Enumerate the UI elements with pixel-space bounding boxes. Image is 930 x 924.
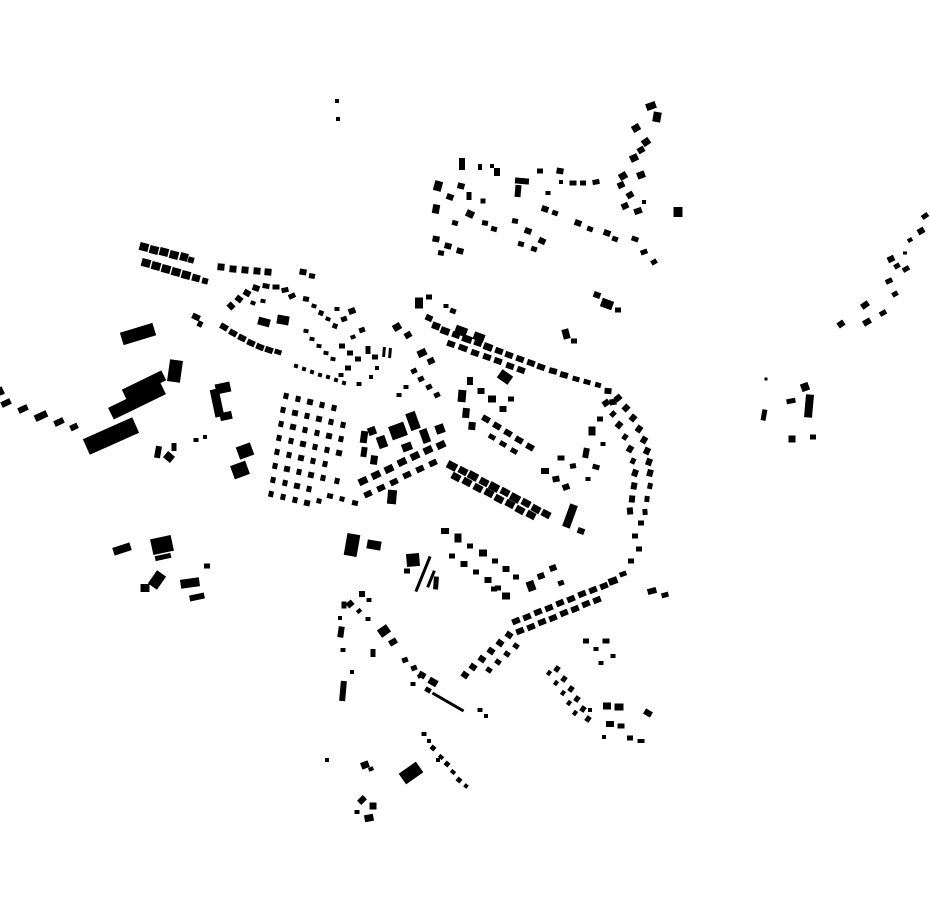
building-footprint — [570, 181, 577, 186]
building-footprint — [167, 359, 183, 383]
building-footprint — [446, 340, 456, 348]
building-footprint — [404, 385, 409, 389]
building-footprint — [626, 444, 635, 453]
building-footprint — [450, 769, 456, 775]
building-footprint — [647, 483, 653, 490]
building-footprint — [789, 436, 796, 443]
building-footprint — [555, 599, 565, 608]
building-footprint — [336, 117, 340, 121]
building-footprint — [325, 316, 331, 321]
building-footprint — [566, 595, 576, 604]
building-footprint — [120, 323, 156, 345]
building-footprint — [446, 460, 459, 472]
building-footprint — [376, 484, 386, 493]
building-footprint — [481, 414, 491, 423]
building-footprint — [520, 498, 531, 508]
building-footprint — [885, 277, 893, 284]
building-footprint — [415, 298, 423, 309]
building-footprint — [810, 435, 816, 440]
building-footprint — [594, 647, 599, 651]
building-footprint — [286, 452, 292, 459]
building-footprint — [450, 472, 461, 482]
building-footprint — [460, 671, 469, 680]
building-footprint — [618, 724, 625, 729]
building-footprint — [434, 423, 446, 435]
building-footprint — [579, 705, 587, 713]
building-footprint — [334, 478, 340, 485]
building-footprint — [17, 404, 29, 414]
building-footprint — [661, 592, 669, 599]
building-footprint — [907, 237, 913, 243]
building-footprint — [241, 266, 249, 274]
building-footprint — [567, 685, 575, 693]
building-footprint — [314, 430, 320, 437]
building-footprint — [621, 433, 629, 441]
building-footprint — [640, 435, 649, 444]
building-footprint — [628, 413, 637, 422]
building-footprint — [252, 284, 261, 292]
building-footprint — [804, 394, 814, 418]
building-footprint — [458, 344, 469, 353]
building-footprint — [282, 480, 288, 487]
building-footprint — [921, 212, 930, 220]
building-footprint — [599, 661, 604, 665]
building-footprint — [514, 435, 524, 444]
building-footprint — [570, 463, 577, 469]
building-footprint — [516, 366, 526, 374]
building-footprint — [307, 471, 314, 478]
building-footprint — [522, 613, 532, 622]
building-footprint — [765, 378, 768, 381]
building-footprint — [513, 575, 519, 580]
building-footprint — [151, 261, 162, 271]
building-footprint — [586, 226, 593, 233]
building-footprint — [537, 618, 547, 627]
building-footprint — [497, 369, 513, 385]
building-footprint — [322, 461, 328, 468]
building-footprint — [281, 287, 289, 293]
building-footprint — [512, 218, 519, 224]
building-footprint — [280, 407, 286, 414]
building-footprint — [141, 584, 150, 592]
building-footprint — [629, 495, 636, 502]
building-footprint — [339, 496, 345, 502]
building-footprint — [340, 422, 346, 429]
building-footprint — [262, 283, 270, 289]
building-footprint — [494, 347, 504, 355]
building-footprint — [69, 423, 79, 432]
building-footprint — [236, 442, 255, 459]
building-footprint — [560, 675, 568, 683]
building-footprint — [359, 591, 365, 597]
building-footprint — [315, 415, 322, 422]
building-footprint — [510, 447, 519, 455]
building-footprint — [429, 744, 436, 751]
building-footprint — [891, 290, 899, 297]
building-footprint — [316, 344, 322, 349]
building-footprint — [503, 650, 511, 658]
building-footprint — [594, 382, 601, 388]
building-footprint — [541, 468, 549, 474]
building-footprint — [573, 695, 581, 703]
building-footprint — [491, 587, 497, 592]
building-footprint — [402, 471, 412, 480]
building-footprint — [584, 715, 592, 723]
building-footprint — [580, 181, 586, 186]
building-footprint — [360, 431, 369, 444]
building-footprint — [431, 321, 441, 330]
building-footprint — [643, 447, 651, 456]
building-footprint — [219, 322, 229, 331]
building-footprint — [597, 417, 603, 422]
building-footprint — [397, 393, 402, 397]
building-footprint — [638, 521, 644, 526]
building-footprint — [376, 435, 389, 449]
building-footprint — [338, 616, 342, 620]
building-footprint — [303, 296, 310, 302]
building-footprint — [34, 410, 49, 422]
building-footprint — [338, 436, 344, 443]
building-footprint — [337, 626, 344, 638]
building-footprint — [350, 670, 354, 674]
building-footprint — [650, 258, 658, 265]
building-footprint — [604, 388, 611, 395]
building-footprint — [141, 258, 152, 268]
building-footprint — [169, 250, 180, 260]
building-footprint — [611, 236, 618, 243]
building-footprint — [401, 657, 408, 664]
building-footprint — [302, 427, 308, 434]
building-footprint — [674, 207, 683, 217]
building-footprint — [237, 334, 247, 343]
building-footprint — [483, 342, 494, 352]
building-footprint — [342, 381, 347, 386]
building-footprint — [330, 357, 336, 362]
building-footprint — [427, 739, 431, 743]
building-footprint — [320, 475, 326, 482]
building-footprint — [536, 363, 546, 371]
building-footprint — [603, 229, 612, 237]
building-footprint — [465, 209, 475, 219]
building-footprint — [229, 265, 237, 273]
building-footprint — [478, 388, 485, 394]
building-footprint — [191, 274, 201, 283]
building-footprint — [560, 690, 566, 696]
building-footprint — [583, 379, 591, 386]
building-footprint — [621, 403, 630, 412]
building-footprint — [419, 428, 431, 444]
building-footprint — [303, 499, 310, 506]
building-footprint — [344, 533, 361, 557]
building-footprint — [341, 648, 346, 652]
building-footprint — [508, 397, 514, 402]
building-footprint — [617, 181, 626, 189]
building-footprint — [549, 564, 558, 572]
building-footprint — [295, 396, 301, 403]
building-footprint — [577, 590, 587, 599]
building-footprint — [342, 602, 347, 609]
building-footprint — [274, 449, 280, 456]
building-footprint — [517, 241, 524, 247]
building-footprint — [438, 250, 445, 256]
building-footprint — [310, 458, 316, 465]
building-footprint — [382, 347, 386, 357]
building-footprint — [433, 180, 443, 192]
building-footprint — [652, 111, 662, 122]
building-footprint — [297, 454, 304, 461]
building-footprint — [581, 600, 591, 609]
building-footprint — [553, 680, 559, 686]
building-footprint — [274, 349, 282, 356]
building-footprint — [627, 736, 633, 741]
building-footprint — [646, 469, 654, 477]
building-footprint — [461, 561, 468, 567]
building-footprint — [411, 682, 416, 686]
building-footprint — [180, 577, 200, 589]
building-footprint — [189, 593, 205, 602]
building-footprint — [201, 277, 208, 284]
building-footprint — [647, 587, 657, 595]
building-footprint — [161, 264, 172, 274]
building-footprint — [334, 378, 339, 383]
building-footprint — [357, 476, 368, 486]
building-footprint — [526, 623, 536, 632]
building-footprint — [599, 582, 609, 591]
building-footprint — [615, 308, 621, 313]
building-footprint — [903, 252, 907, 255]
building-footprint — [614, 420, 623, 429]
building-footprint — [154, 446, 162, 459]
building-footprint — [538, 237, 547, 245]
building-footprint — [302, 367, 307, 372]
building-footprint — [463, 783, 469, 789]
building-footprint — [352, 500, 359, 506]
building-footprint — [546, 670, 552, 676]
building-footprint — [264, 346, 274, 354]
building-footprint — [582, 448, 590, 459]
building-footprint — [422, 732, 427, 736]
building-footprint — [303, 329, 309, 334]
building-footprint — [355, 357, 361, 362]
building-footprint — [370, 803, 377, 810]
building-footprint — [372, 355, 378, 360]
building-footprint — [399, 762, 424, 785]
building-footprint — [562, 483, 571, 491]
building-footprint — [425, 314, 434, 322]
building-footprint — [588, 708, 592, 712]
building-footprint — [556, 167, 564, 174]
building-footprint — [457, 182, 465, 190]
building-footprint — [324, 447, 330, 454]
building-footprint — [502, 593, 510, 600]
building-footprint — [633, 207, 643, 215]
building-footprint — [327, 493, 334, 499]
building-footprint — [558, 456, 565, 461]
building-footprint — [632, 534, 638, 539]
building-footprint — [619, 570, 627, 577]
building-footprint — [583, 639, 589, 644]
building-footprint — [441, 528, 449, 534]
building-footprint — [486, 647, 495, 656]
building-footprint — [592, 596, 602, 605]
building-footprint — [366, 346, 371, 354]
building-footprint — [500, 406, 507, 412]
building-footprint — [482, 353, 492, 361]
building-footprint — [636, 547, 642, 552]
building-footprint — [511, 617, 521, 626]
building-footprint — [335, 449, 342, 456]
building-footprint — [389, 478, 399, 487]
building-footprint — [492, 559, 498, 564]
building-footprint — [139, 242, 150, 252]
building-footprint — [196, 320, 203, 328]
building-footprint — [615, 704, 624, 711]
building-footprint — [253, 267, 261, 275]
building-footprint — [879, 309, 888, 317]
building-footprint — [309, 337, 315, 342]
building-footprint — [149, 245, 160, 255]
building-footprint — [335, 307, 340, 311]
building-footprint — [268, 491, 274, 498]
building-footprint — [230, 461, 250, 480]
building-footprint — [273, 285, 280, 290]
building-footprint — [387, 490, 397, 505]
building-footprint — [557, 580, 564, 587]
building-footprint — [551, 210, 558, 217]
building-footprint — [572, 710, 578, 716]
building-footprint — [283, 393, 289, 400]
building-footprint — [283, 465, 290, 472]
building-footprint — [456, 247, 464, 255]
building-footprint — [603, 639, 610, 644]
building-footprint — [467, 377, 473, 385]
building-footprint — [53, 417, 65, 427]
building-footprint — [345, 366, 351, 371]
building-footprint — [485, 666, 493, 674]
building-footprint — [515, 627, 525, 636]
building-footprint — [625, 191, 634, 200]
building-footprint — [467, 192, 472, 200]
building-footprint — [836, 320, 845, 329]
building-footprint — [488, 433, 497, 441]
building-footprint — [288, 292, 296, 299]
building-footprint — [332, 323, 338, 329]
building-footprint — [548, 614, 558, 623]
building-footprint — [325, 432, 332, 439]
building-footprint — [370, 470, 381, 480]
building-footprint — [481, 199, 486, 204]
building-footprint — [292, 497, 298, 504]
building-footprint — [451, 220, 458, 226]
building-footprint — [340, 316, 347, 323]
building-footprint — [425, 383, 433, 390]
building-footprint — [524, 227, 533, 235]
building-footprint — [482, 220, 489, 226]
building-footprint — [541, 205, 550, 213]
building-footprint — [572, 376, 580, 383]
building-footprint — [310, 370, 315, 375]
building-footprint — [326, 375, 331, 380]
building-footprint — [0, 386, 5, 395]
building-footprint — [544, 604, 554, 613]
building-footprint — [357, 795, 367, 805]
building-footprint — [530, 246, 537, 253]
building-footprint — [427, 677, 438, 688]
building-footprint — [424, 686, 432, 693]
building-footprint — [403, 331, 412, 340]
building-footprint — [631, 469, 639, 478]
building-footprint — [493, 357, 503, 365]
building-footprint — [371, 649, 376, 657]
building-footprint — [459, 158, 465, 170]
building-footprint — [636, 170, 646, 179]
building-footprint — [433, 391, 441, 398]
building-footprint — [366, 539, 381, 550]
building-footprint — [367, 426, 377, 436]
building-footprint — [645, 458, 653, 467]
building-footprint — [309, 273, 316, 279]
building-footprint — [800, 382, 810, 392]
building-footprint — [272, 463, 278, 470]
building-footprint — [366, 617, 371, 621]
building-footprint — [494, 658, 502, 666]
building-footprint — [635, 424, 644, 433]
building-footprint — [636, 146, 645, 155]
building-footprint — [246, 339, 256, 348]
building-footprint — [478, 164, 482, 170]
building-footprint — [916, 227, 925, 236]
building-footprint — [432, 692, 465, 713]
building-footprint — [515, 355, 525, 363]
building-footprint — [409, 451, 420, 461]
building-footprint — [446, 193, 455, 201]
building-footprint — [428, 459, 438, 468]
building-footprint — [367, 598, 372, 602]
building-footprint — [257, 317, 271, 328]
building-footprint — [260, 299, 266, 304]
building-footprint — [492, 421, 502, 430]
building-footprint — [375, 366, 379, 370]
building-footprint — [388, 422, 408, 441]
building-footprint — [537, 169, 543, 174]
building-footprint — [172, 443, 177, 451]
building-footprint — [396, 457, 407, 467]
building-footprint — [490, 226, 497, 232]
building-footprint — [862, 317, 872, 326]
building-footprint — [318, 373, 323, 378]
building-footprint — [526, 580, 537, 592]
building-footprint — [392, 322, 402, 332]
building-footprint — [495, 639, 504, 648]
building-footprint — [562, 503, 578, 528]
building-footprint — [600, 298, 614, 311]
building-footprint — [204, 564, 210, 569]
building-footprint — [609, 410, 617, 418]
building-footprint — [369, 375, 373, 379]
building-footprint — [312, 444, 318, 451]
building-footprint — [618, 171, 628, 181]
building-footprint — [629, 153, 639, 163]
building-footprint — [467, 544, 473, 549]
map-viewport — [0, 0, 930, 924]
building-footprint — [449, 554, 455, 559]
figure-ground-map — [0, 0, 930, 924]
building-footprint — [148, 570, 166, 589]
building-footprint — [276, 435, 282, 442]
building-footprint — [357, 382, 362, 386]
building-footprint — [643, 708, 653, 717]
building-footprint — [255, 343, 265, 352]
